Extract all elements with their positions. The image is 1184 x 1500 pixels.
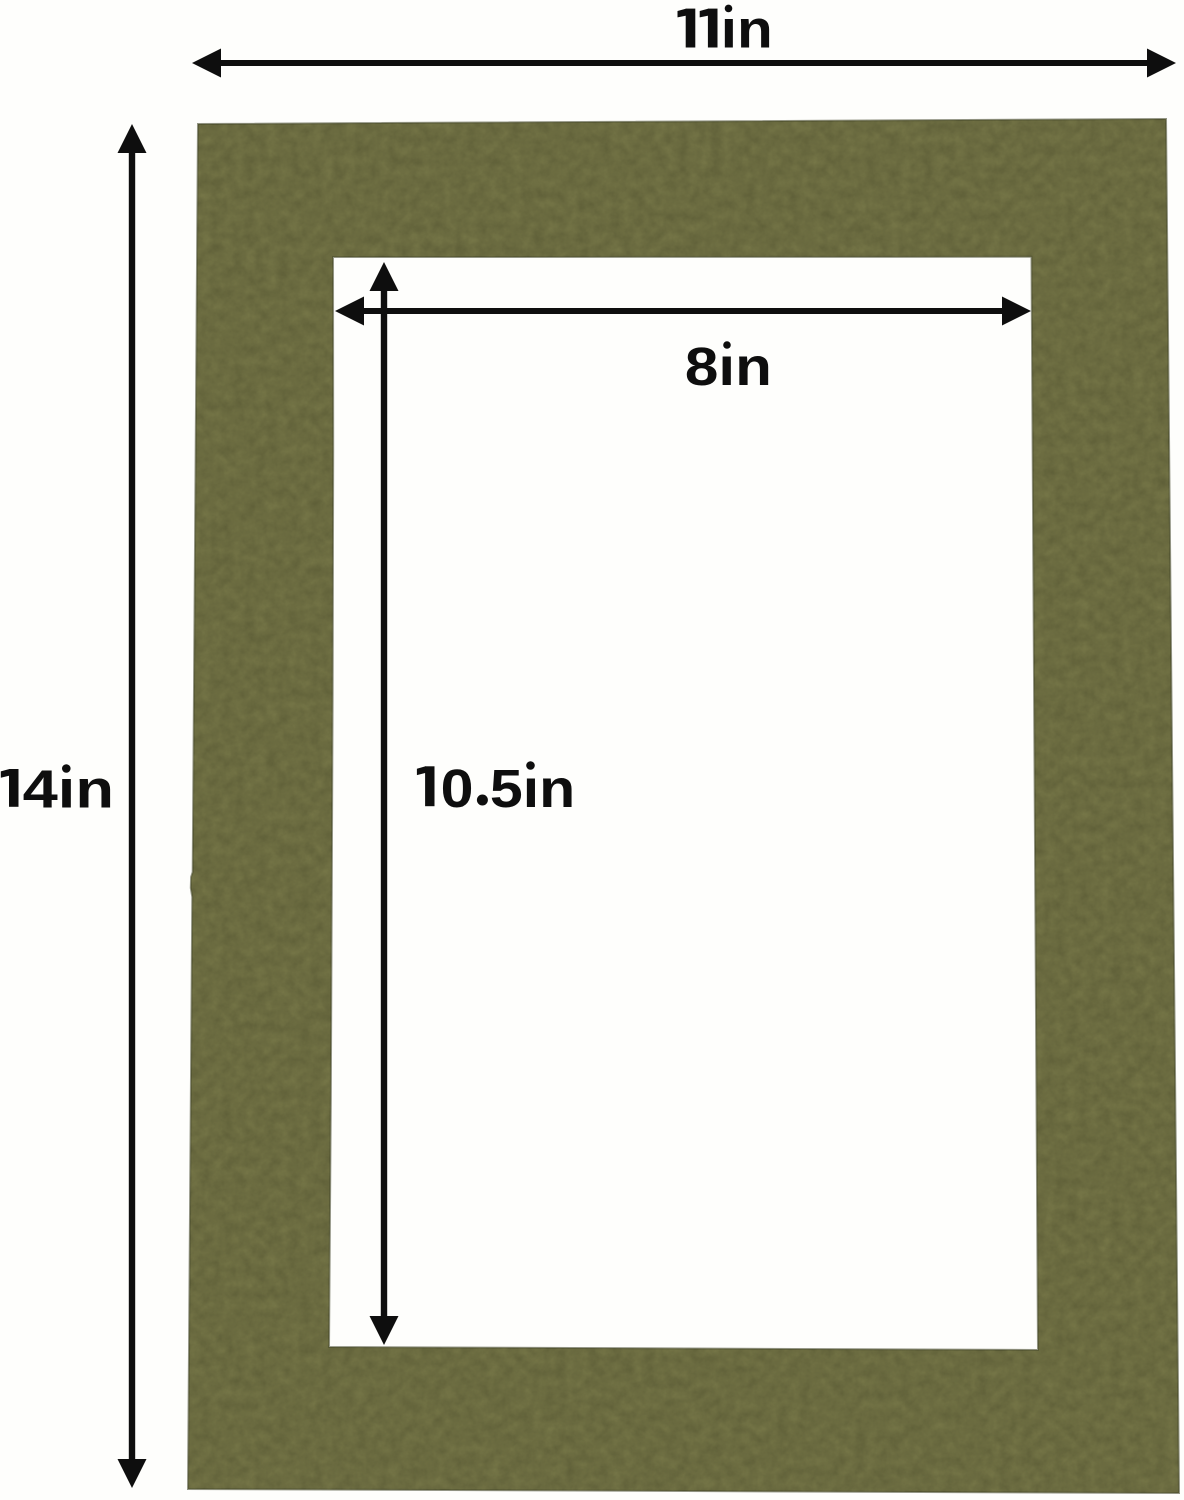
svg-text:0.5in: 0.5in — [441, 759, 576, 819]
